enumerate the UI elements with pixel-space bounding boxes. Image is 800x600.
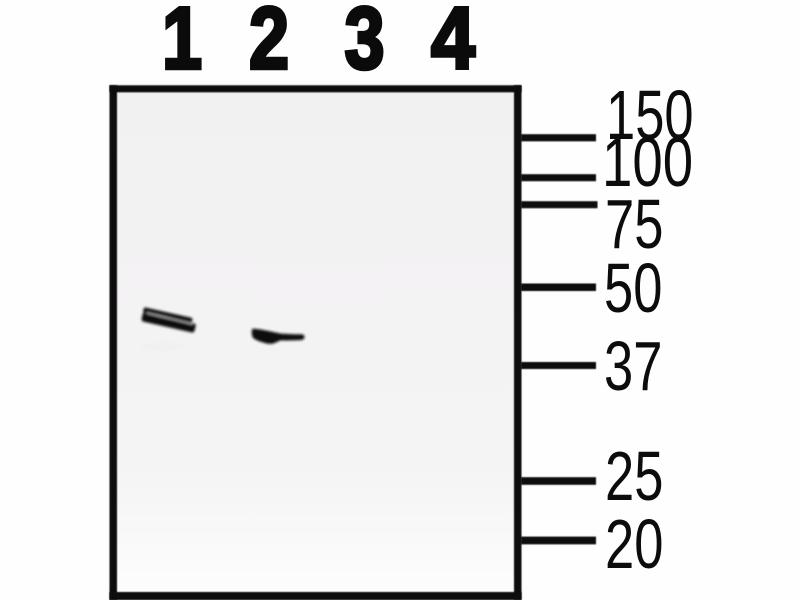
svg-text:20: 20 [605, 506, 663, 584]
svg-text:50: 50 [604, 250, 662, 328]
svg-text:37: 37 [604, 328, 662, 406]
svg-text:25: 25 [605, 438, 663, 516]
svg-text:2: 2 [249, 0, 289, 88]
svg-text:3: 3 [345, 0, 385, 88]
svg-text:4: 4 [431, 0, 475, 87]
svg-text:1: 1 [162, 0, 202, 88]
